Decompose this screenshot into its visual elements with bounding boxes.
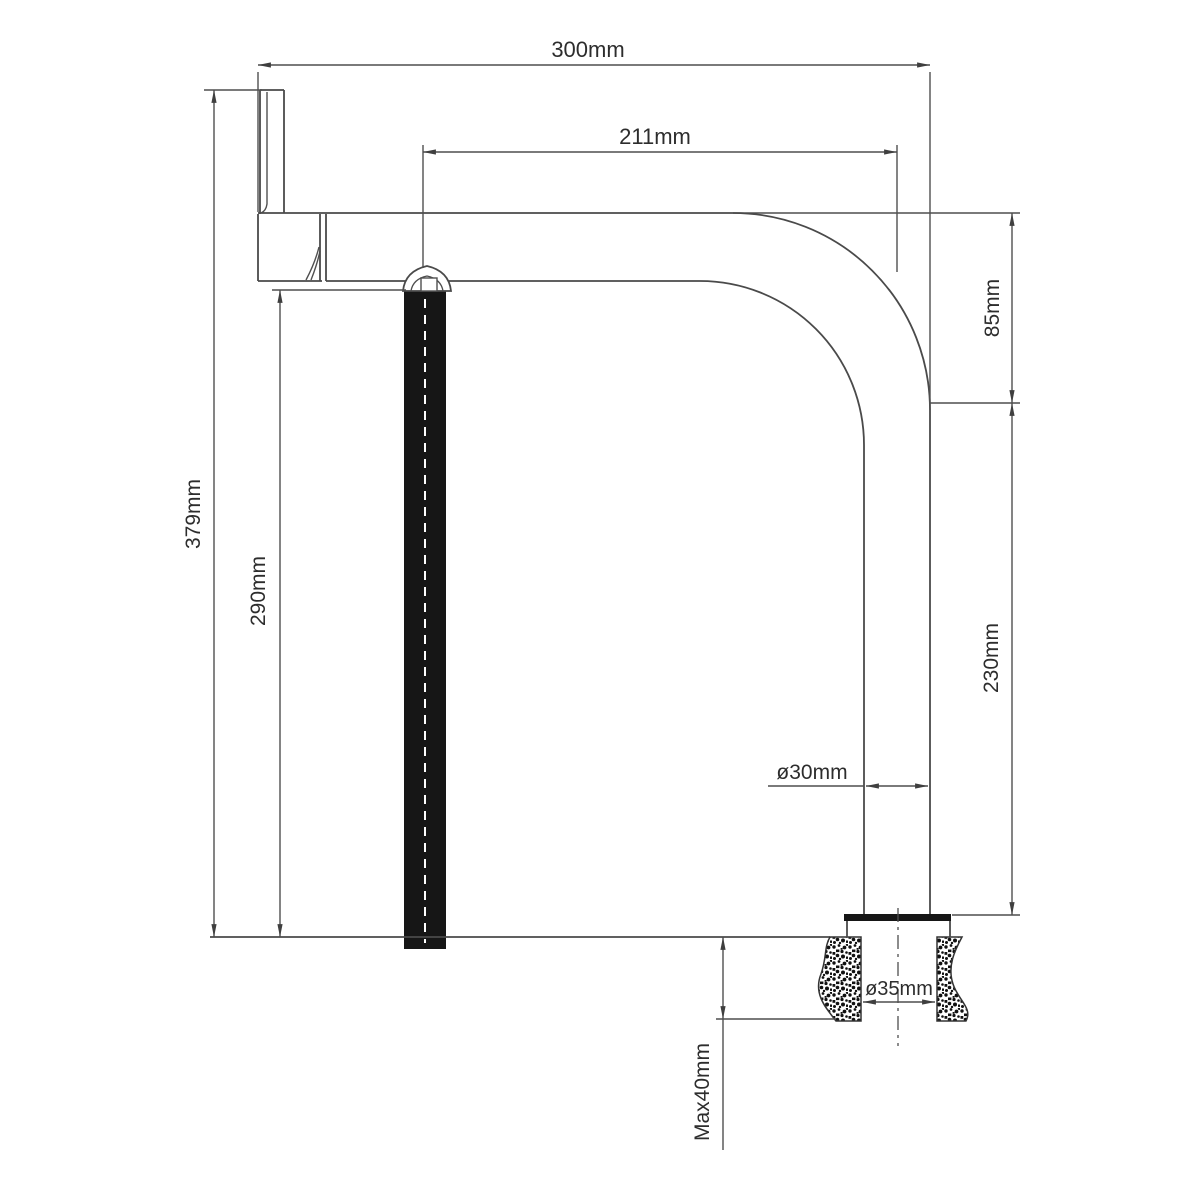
dim-label-30mm: ø30mm xyxy=(776,761,847,784)
handle-highlight-line xyxy=(261,92,267,213)
dimension-max-deck-thickness: Max40mm xyxy=(691,937,836,1150)
dim-label-211mm: 211mm xyxy=(619,124,691,149)
handle-lever xyxy=(260,90,284,214)
dimension-curve-height: 85mm xyxy=(930,213,1020,403)
spout-inner-curve xyxy=(700,281,864,445)
dim-label-max40mm: Max40mm xyxy=(691,1043,714,1141)
dimension-outlet-reach: 211mm xyxy=(423,124,897,272)
countertop-section xyxy=(210,908,968,1046)
dim-label-290mm: 290mm xyxy=(247,556,270,626)
technical-drawing-canvas: 300mm 211mm 85mm 230mm 379mm 290mm ø30mm xyxy=(0,0,1200,1200)
dim-label-230mm: 230mm xyxy=(980,623,1003,693)
countertop-right-block xyxy=(937,937,968,1021)
faucet-dimension-diagram: 300mm 211mm 85mm 230mm 379mm 290mm ø30mm xyxy=(0,0,1200,1200)
countertop-left-block xyxy=(819,937,861,1021)
dim-label-35mm: ø35mm xyxy=(865,978,933,1000)
aerator-center-detail xyxy=(421,278,437,291)
outlet-and-column xyxy=(403,266,451,949)
dim-label-85mm: 85mm xyxy=(981,279,1004,337)
spout-outer-curve xyxy=(733,213,930,410)
dim-label-379mm: 379mm xyxy=(182,479,205,549)
mixer-body xyxy=(258,214,326,281)
dimension-hole-diameter: ø35mm xyxy=(863,978,935,1002)
spout-tube xyxy=(258,213,1020,914)
dimension-outlet-height: 290mm xyxy=(247,290,406,937)
dimension-pipe-diameter: ø30mm xyxy=(768,761,928,786)
faucet-outline xyxy=(258,90,1020,914)
dimension-riser-height: 230mm xyxy=(952,403,1020,915)
dimension-overall-reach: 300mm xyxy=(258,37,930,410)
dim-label-300mm: 300mm xyxy=(551,37,624,62)
dimension-total-height: 379mm xyxy=(182,90,262,937)
